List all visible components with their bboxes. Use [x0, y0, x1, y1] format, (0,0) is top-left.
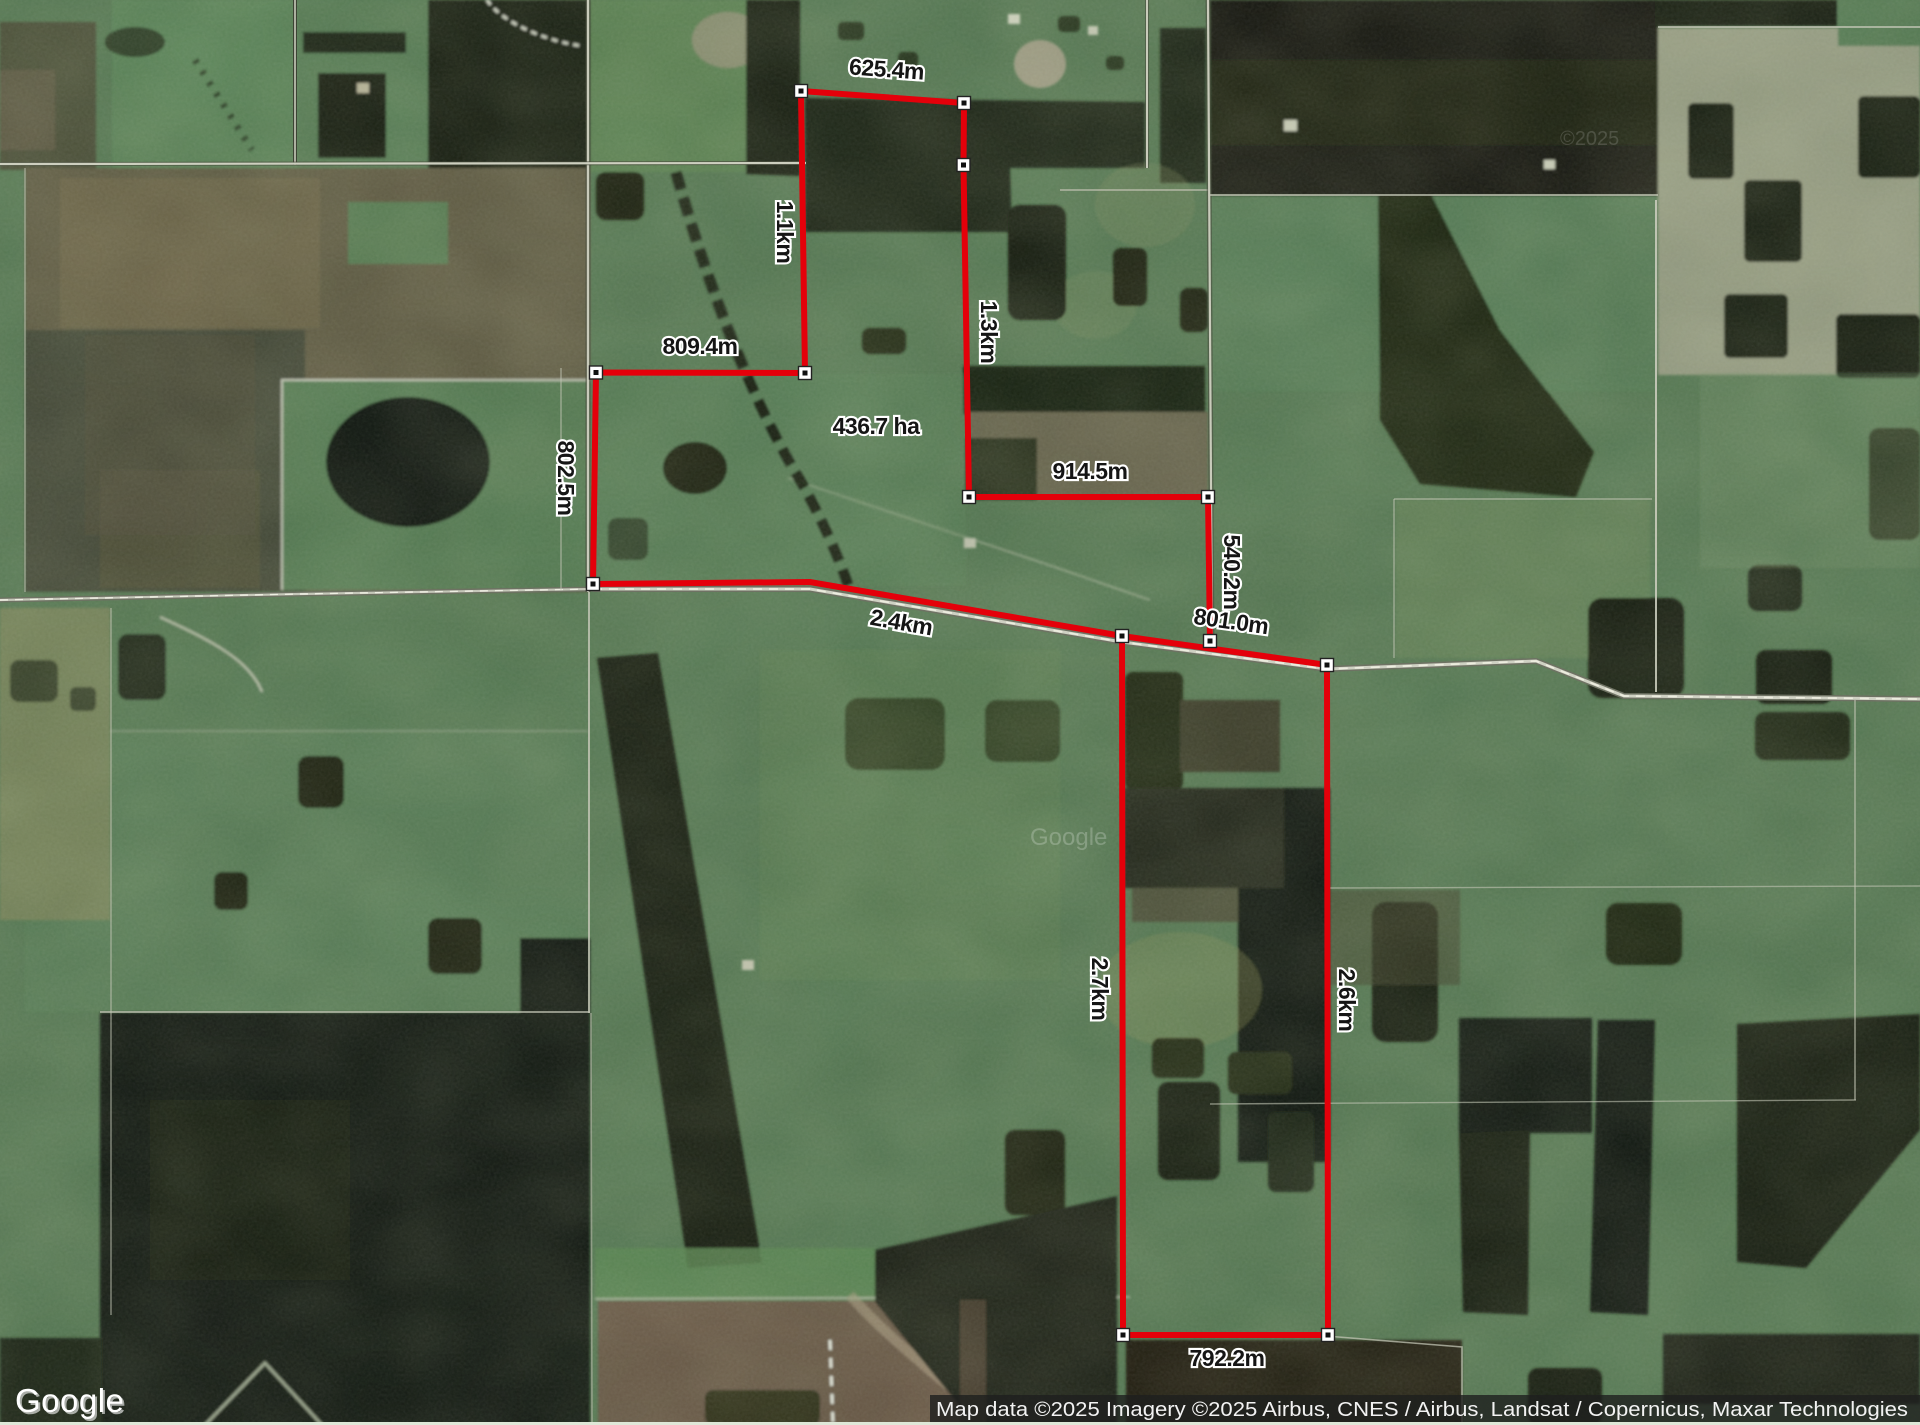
svg-text:802.5m: 802.5m	[553, 440, 579, 515]
svg-text:Google: Google	[1030, 824, 1107, 851]
svg-text:792.2m: 792.2m	[1189, 1345, 1264, 1371]
svg-text:Google: Google	[15, 1382, 124, 1419]
svg-text:Map data ©2025 Imagery ©2025 A: Map data ©2025 Imagery ©2025 Airbus, CNE…	[936, 1399, 1908, 1421]
svg-text:2.7km: 2.7km	[1087, 958, 1113, 1021]
svg-text:809.4m: 809.4m	[662, 333, 737, 359]
svg-text:1.1km: 1.1km	[772, 201, 798, 264]
svg-text:436.7 ha: 436.7 ha	[833, 413, 920, 439]
svg-text:914.5m: 914.5m	[1052, 458, 1127, 484]
svg-text:1.3km: 1.3km	[976, 301, 1002, 364]
svg-text:2.6km: 2.6km	[1334, 969, 1360, 1032]
svg-text:625.4m: 625.4m	[848, 53, 925, 84]
svg-text:540.2m: 540.2m	[1219, 534, 1245, 609]
svg-text:©2025: ©2025	[1560, 128, 1619, 150]
